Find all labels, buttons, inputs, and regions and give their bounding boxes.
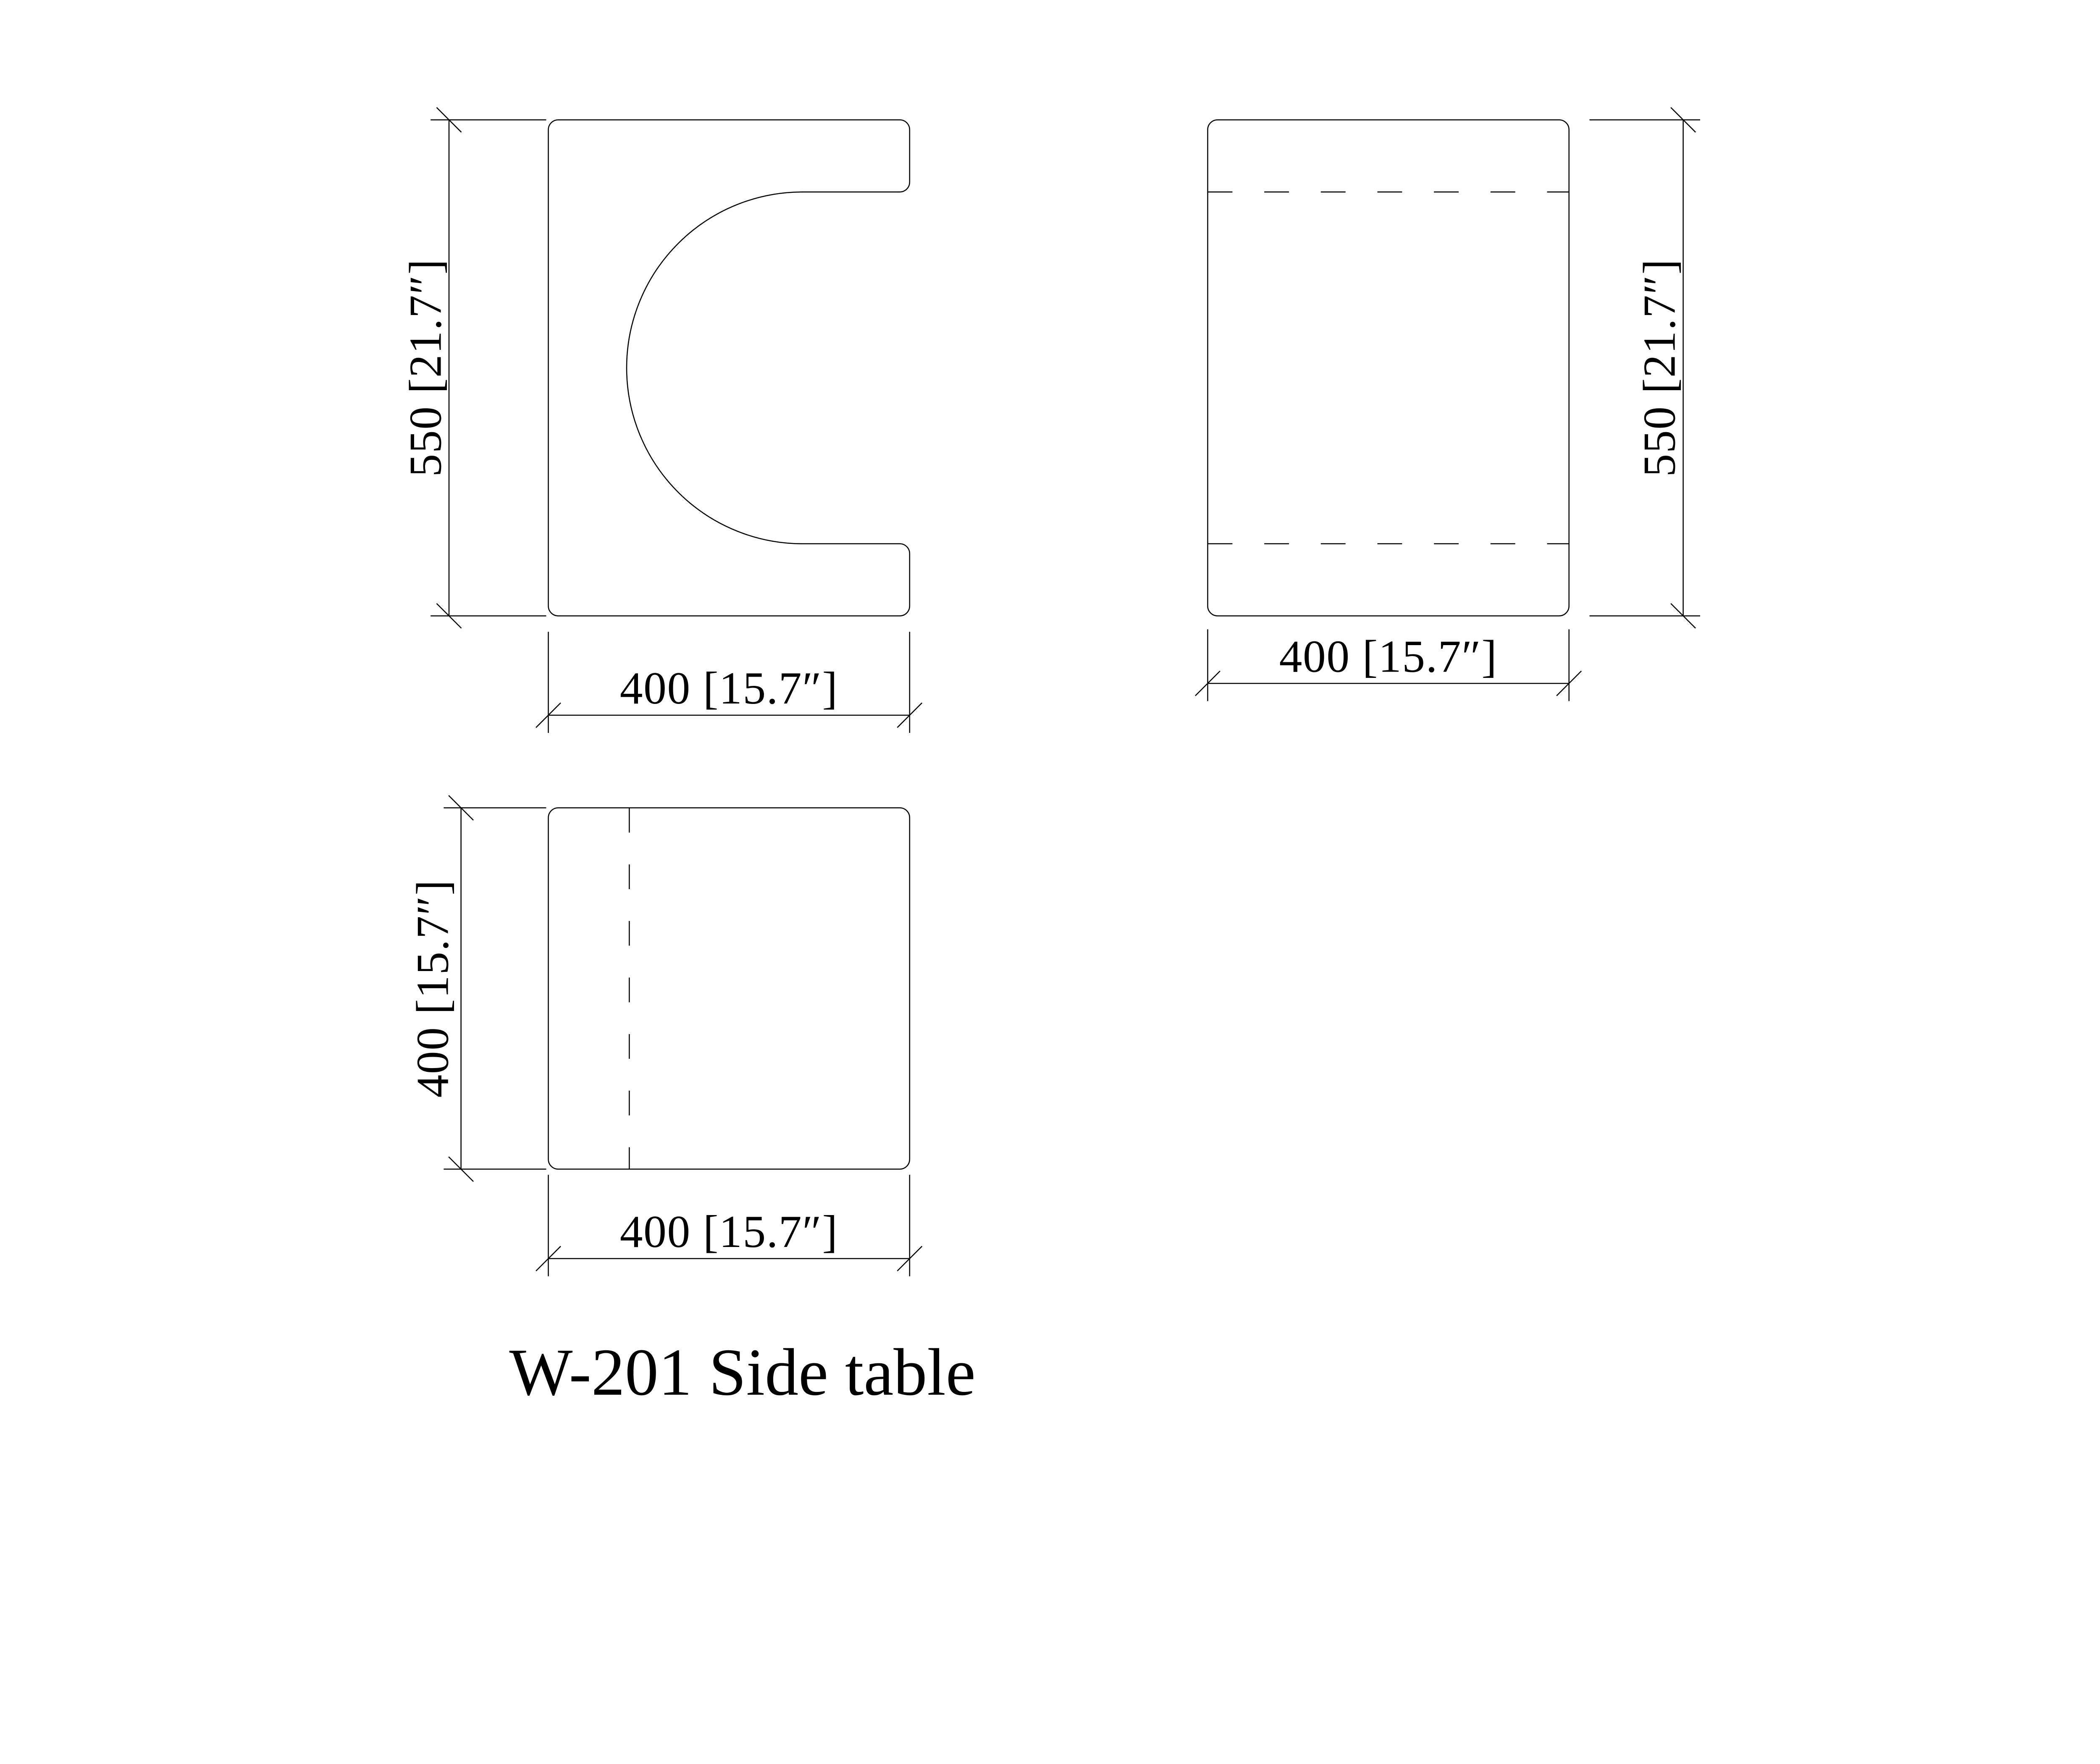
side-view: [1207, 120, 1569, 616]
dimension-label: 400 [15.7″]: [407, 879, 458, 1098]
top-view: [549, 808, 910, 1169]
drawing-sheet: 550 [21.7″] 400 [15.7″] 550 [21.7″]: [0, 0, 2100, 1764]
dimension-label: 400 [15.7″]: [1279, 630, 1498, 682]
side-view-outline: [1207, 120, 1569, 616]
front-view-width-dimension: 400 [15.7″]: [536, 632, 922, 733]
dimension-label: 400 [15.7″]: [620, 662, 838, 714]
side-view-height-dimension: 550 [21.7″]: [1590, 108, 1700, 628]
dimension-label: 400 [15.7″]: [620, 1206, 838, 1257]
top-view-depth-dimension: 400 [15.7″]: [407, 795, 546, 1181]
top-view-outline: [549, 808, 910, 1169]
technical-drawing: 550 [21.7″] 400 [15.7″] 550 [21.7″]: [0, 0, 2100, 1764]
side-view-width-dimension: 400 [15.7″]: [1195, 629, 1581, 701]
front-view-outline: [549, 120, 910, 616]
top-view-width-dimension: 400 [15.7″]: [536, 1175, 922, 1276]
dimension-label: 550 [21.7″]: [1633, 258, 1685, 477]
dimension-label: 550 [21.7″]: [400, 258, 451, 477]
front-view: [549, 120, 910, 616]
front-view-height-dimension: 550 [21.7″]: [400, 108, 546, 628]
drawing-title: W-201 Side table: [509, 1335, 976, 1410]
